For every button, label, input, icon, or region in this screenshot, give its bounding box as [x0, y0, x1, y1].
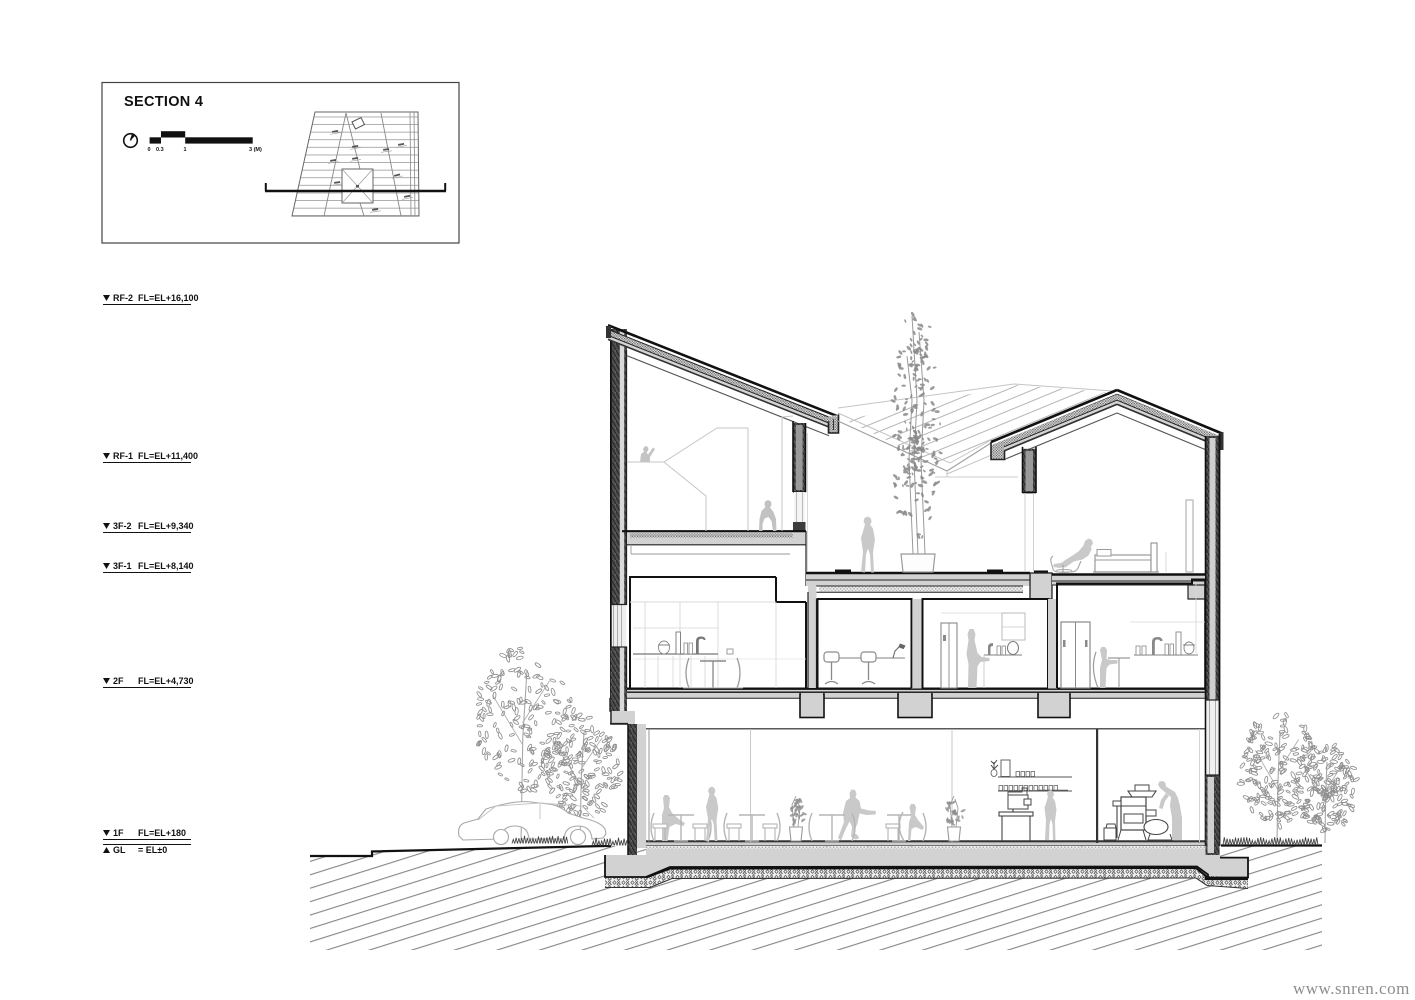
svg-text:0: 0 — [148, 147, 151, 153]
svg-text:2F: 2F — [113, 676, 124, 686]
svg-text:www.snren.com: www.snren.com — [1293, 979, 1410, 998]
svg-text:1: 1 — [184, 147, 187, 153]
svg-text:FL=EL+11,400: FL=EL+11,400 — [138, 451, 198, 461]
svg-text:FL=EL+9,340: FL=EL+9,340 — [138, 521, 194, 531]
svg-text:SECTION 4: SECTION 4 — [124, 94, 203, 110]
svg-text:FL=EL+16,100: FL=EL+16,100 — [138, 293, 199, 303]
svg-text:FL=EL+8,140: FL=EL+8,140 — [138, 561, 194, 571]
svg-text:FL=EL+180: FL=EL+180 — [138, 828, 186, 838]
svg-text:= EL±0: = EL±0 — [138, 845, 167, 855]
svg-text:0.3: 0.3 — [156, 147, 164, 153]
svg-text:RF-1: RF-1 — [113, 451, 133, 461]
svg-text:GL: GL — [113, 845, 126, 855]
svg-text:3F-1: 3F-1 — [113, 561, 132, 571]
svg-text:FL=EL+4,730: FL=EL+4,730 — [138, 676, 194, 686]
svg-text:RF-2: RF-2 — [113, 293, 133, 303]
svg-text:1F: 1F — [113, 828, 124, 838]
svg-text:3F-2: 3F-2 — [113, 521, 132, 531]
svg-text:3 (M): 3 (M) — [249, 147, 262, 153]
